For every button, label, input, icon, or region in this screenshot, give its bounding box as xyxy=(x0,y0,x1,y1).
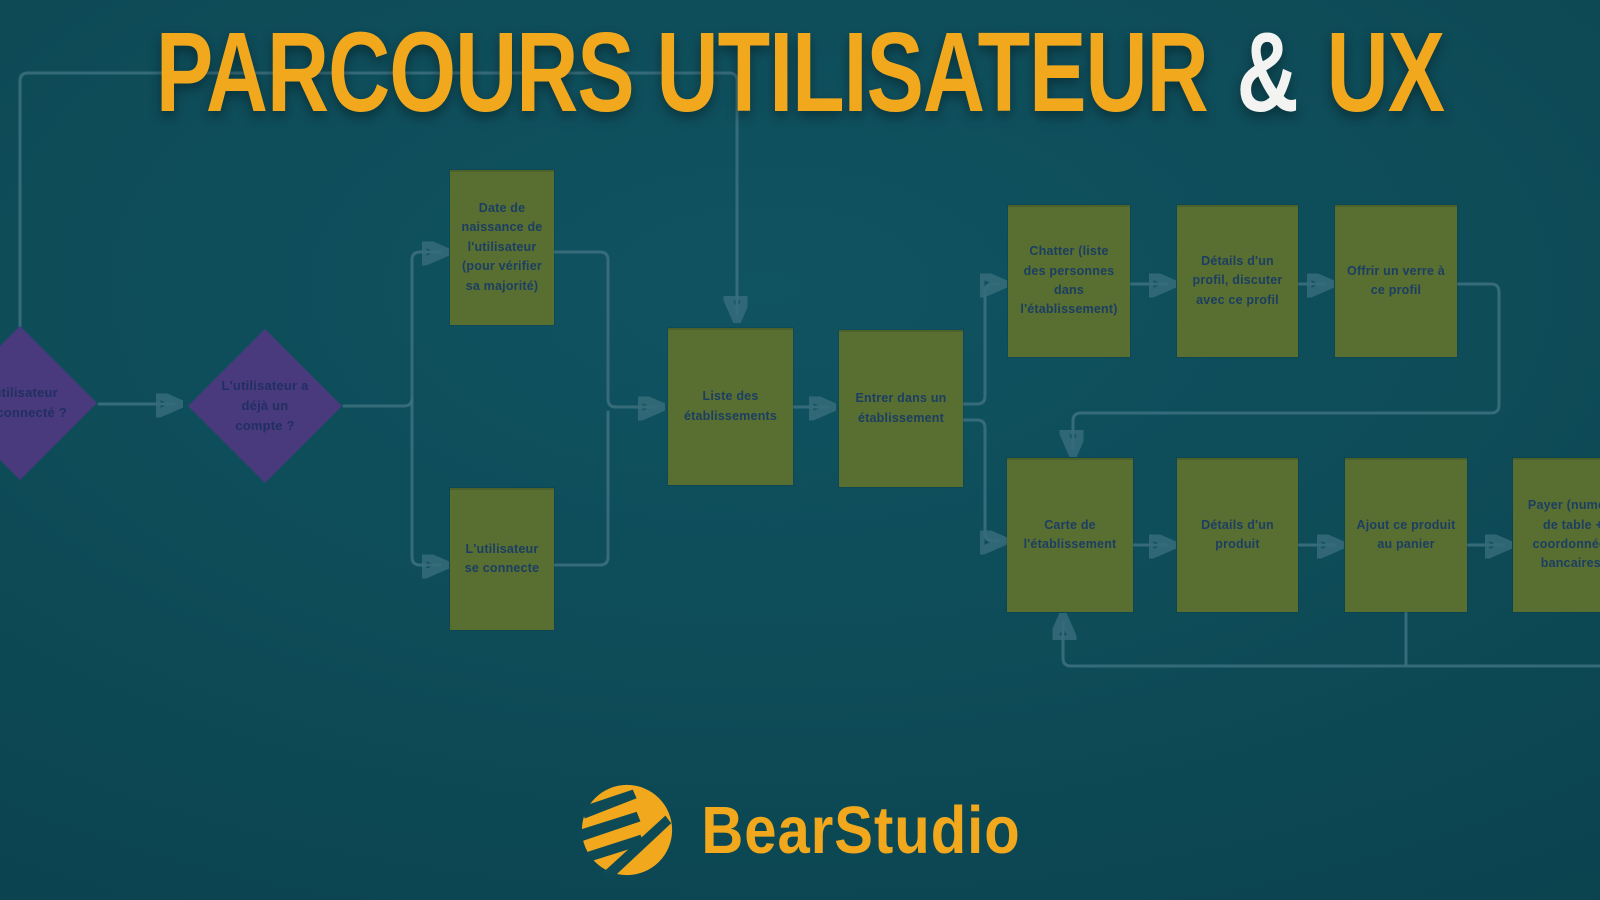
connector-bottom-loop-to-menu xyxy=(1063,622,1600,666)
flow-node-product-details: Détails d'un produit xyxy=(1177,458,1298,612)
connector-login-merge xyxy=(554,412,608,565)
flow-node-chat: Chatter (liste des personnes dans l'étab… xyxy=(1008,205,1130,357)
bearstudio-logo: BearStudio xyxy=(0,775,1600,885)
step-label: L'utilisateur se connecte xyxy=(460,540,544,579)
slide-canvas: PARCOURS UTILISATEUR & UX L'utilisateur … xyxy=(0,0,1600,900)
page-title: PARCOURS UTILISATEUR & UX xyxy=(0,16,1600,130)
step-label: Chatter (liste des personnes dans l'étab… xyxy=(1018,242,1120,320)
flow-node-enter-establishment: Entrer dans un établissement xyxy=(839,330,963,487)
step-label: Date de naissance de l'utilisateur (pour… xyxy=(460,199,544,296)
connector-birthdate-to-list xyxy=(554,252,656,407)
step-label: Offrir un verre à ce profil xyxy=(1345,262,1447,301)
flow-node-login: L'utilisateur se connecte xyxy=(450,488,554,630)
decision-label: L'utilisateur a déjà un compte ? xyxy=(218,376,312,436)
step-label: Ajout ce produit au panier xyxy=(1355,516,1457,555)
title-text: PARCOURS UTILISATEUR xyxy=(156,9,1208,136)
title-suffix: UX xyxy=(1327,9,1444,136)
bearstudio-claw-icon xyxy=(579,782,675,878)
title-ampersand: & xyxy=(1231,9,1304,136)
brand-name: BearStudio xyxy=(701,791,1020,868)
decision-user-connected: L'utilisateur est connecté ? xyxy=(0,326,97,480)
step-label: Carte de l'établissement xyxy=(1017,516,1123,555)
connector-enter-to-menu xyxy=(963,420,998,541)
flow-node-birthdate: Date de naissance de l'utilisateur (pour… xyxy=(450,170,554,325)
decision-label: L'utilisateur est connecté ? xyxy=(0,383,67,423)
connector-enter-to-chat xyxy=(963,284,998,404)
connector-d2-to-login xyxy=(412,400,440,565)
flow-node-profile-details: Détails d'un profil, discuter avec ce pr… xyxy=(1177,205,1298,357)
step-label: Détails d'un produit xyxy=(1187,516,1288,555)
decision-has-account: L'utilisateur a déjà un compte ? xyxy=(188,329,342,483)
step-label: Payer (numéro de table + coordonnées ban… xyxy=(1523,496,1600,574)
flow-node-offer-drink: Offrir un verre à ce profil xyxy=(1335,205,1457,357)
flow-node-establishment-menu: Carte de l'établissement xyxy=(1007,458,1133,612)
step-label: Entrer dans un établissement xyxy=(849,389,953,428)
step-label: Liste des établissements xyxy=(678,387,783,426)
connector-d2-to-birthdate xyxy=(344,252,440,406)
flow-node-add-to-cart: Ajout ce produit au panier xyxy=(1345,458,1467,612)
step-label: Détails d'un profil, discuter avec ce pr… xyxy=(1187,252,1288,310)
flow-node-establishment-list: Liste des établissements xyxy=(668,328,793,485)
flow-node-pay: Payer (numéro de table + coordonnées ban… xyxy=(1513,458,1600,612)
